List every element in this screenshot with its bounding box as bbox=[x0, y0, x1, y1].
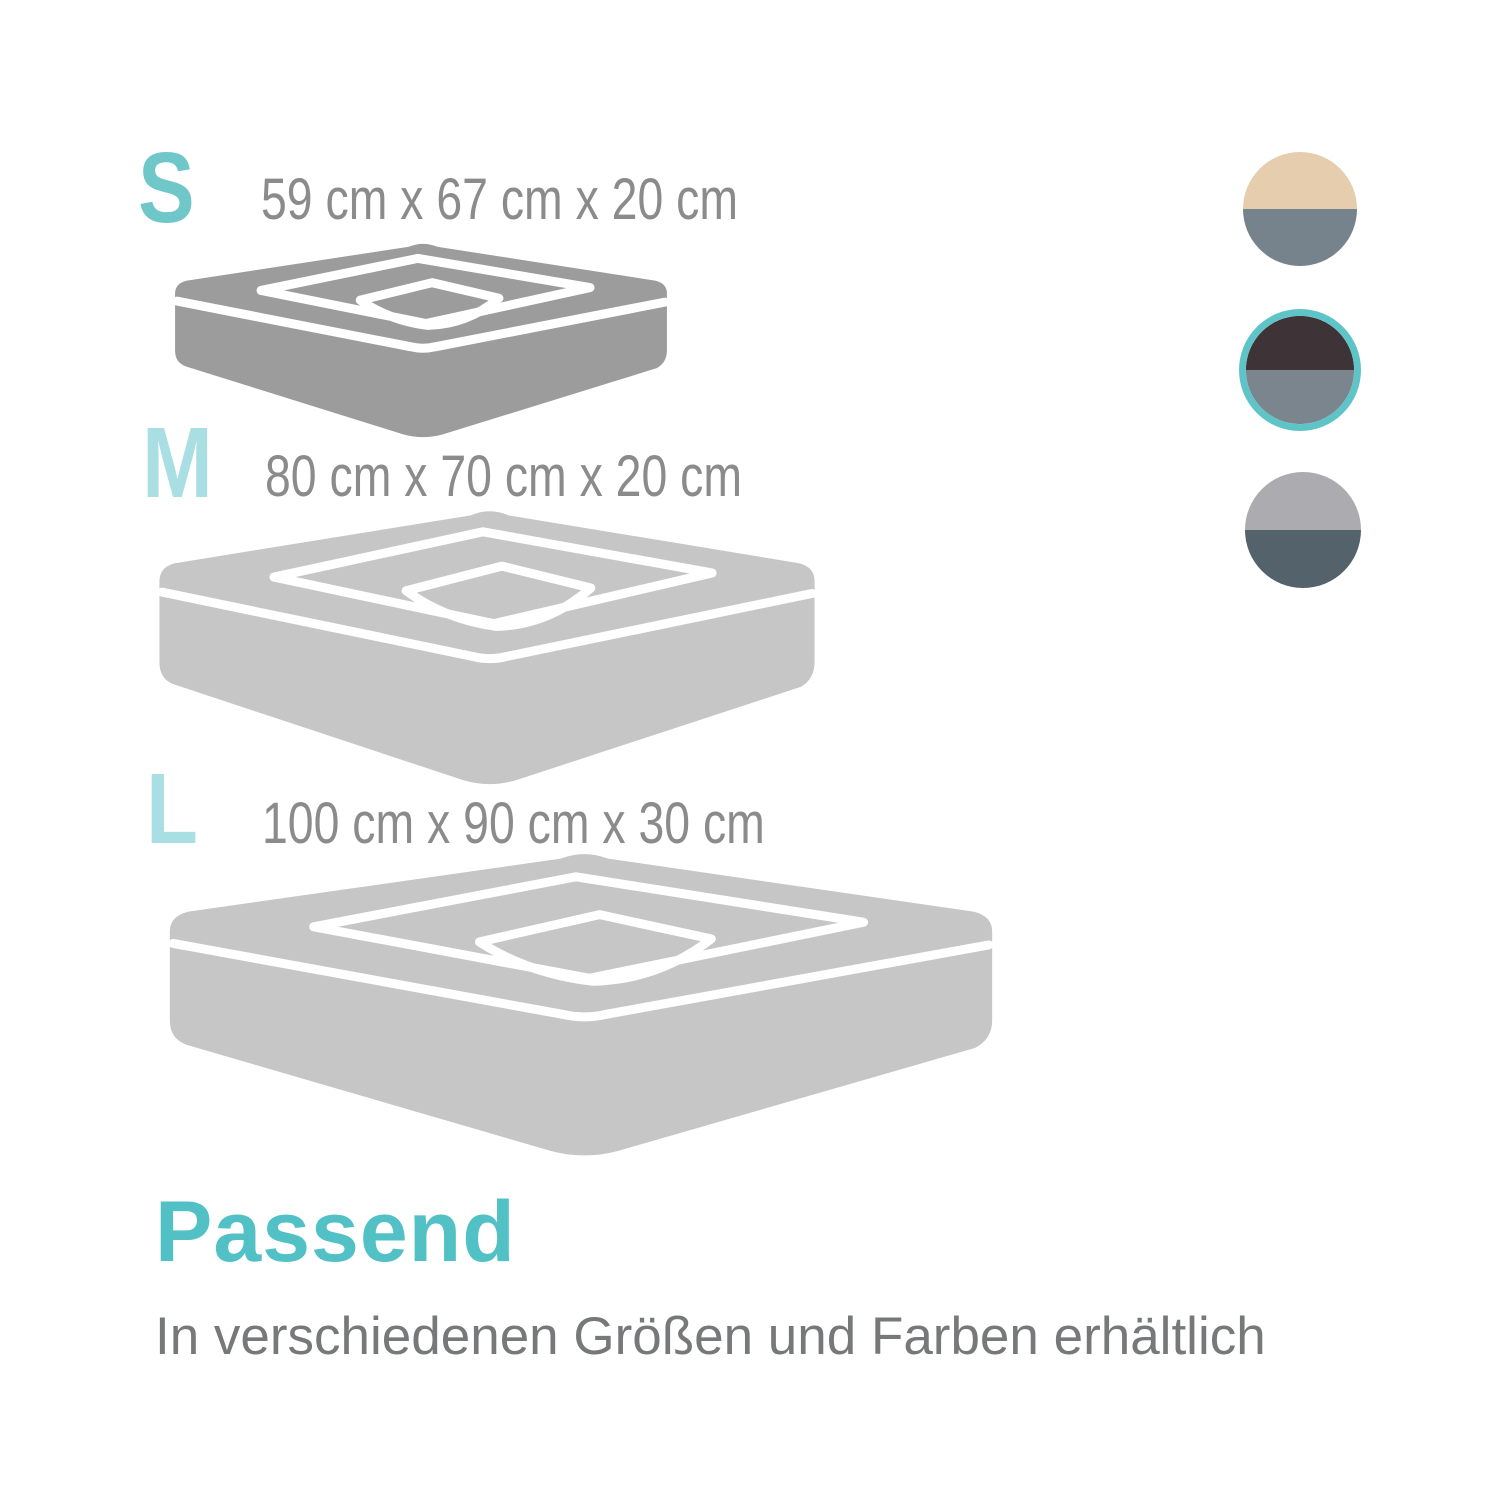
swatch-top-half bbox=[1245, 472, 1361, 530]
size-label-l: L bbox=[146, 759, 207, 859]
swatch-bottom-half bbox=[1245, 530, 1361, 588]
bed-illustration-m bbox=[150, 503, 824, 791]
bed-icon bbox=[168, 238, 674, 442]
size-infographic: S 59 cm x 67 cm x 20 cm M 80 cm x 70 cm … bbox=[0, 0, 1500, 1500]
bed-icon bbox=[158, 845, 1004, 1163]
size-label-s: S bbox=[138, 138, 205, 238]
size-label-m-text: M bbox=[142, 413, 213, 513]
size-dimensions-s-text: 59 cm x 67 cm x 20 cm bbox=[261, 171, 738, 229]
size-dimensions-m: 80 cm x 70 cm x 20 cm bbox=[265, 448, 861, 506]
swatch-top-half bbox=[1243, 152, 1357, 209]
size-dimensions-m-text: 80 cm x 70 cm x 20 cm bbox=[265, 448, 742, 506]
bed-body bbox=[170, 854, 992, 1155]
size-label-m: M bbox=[142, 413, 225, 513]
size-dimensions-s: 59 cm x 67 cm x 20 cm bbox=[261, 171, 857, 229]
color-swatch-lightgray-slate[interactable] bbox=[1245, 472, 1361, 588]
footer-heading: Passend bbox=[155, 1189, 516, 1275]
bed-illustration-s bbox=[168, 238, 674, 442]
size-label-s-text: S bbox=[138, 138, 195, 238]
footer-subtitle: In verschiedenen Größen und Farben erhäl… bbox=[155, 1310, 1266, 1363]
two-tone-circle-icon bbox=[1245, 472, 1361, 588]
color-swatch-beige-gray[interactable] bbox=[1243, 152, 1357, 266]
bed-icon bbox=[150, 503, 824, 791]
two-tone-circle-icon bbox=[1243, 152, 1357, 266]
color-swatch-darkbrown-gray-selected[interactable] bbox=[1239, 309, 1361, 431]
two-tone-circle-icon bbox=[1239, 309, 1361, 431]
bed-body bbox=[159, 511, 814, 784]
bed-illustration-l bbox=[158, 845, 1004, 1163]
swatch-bottom-half bbox=[1243, 209, 1357, 266]
bed-body bbox=[175, 244, 667, 437]
size-label-l-text: L bbox=[146, 759, 198, 859]
